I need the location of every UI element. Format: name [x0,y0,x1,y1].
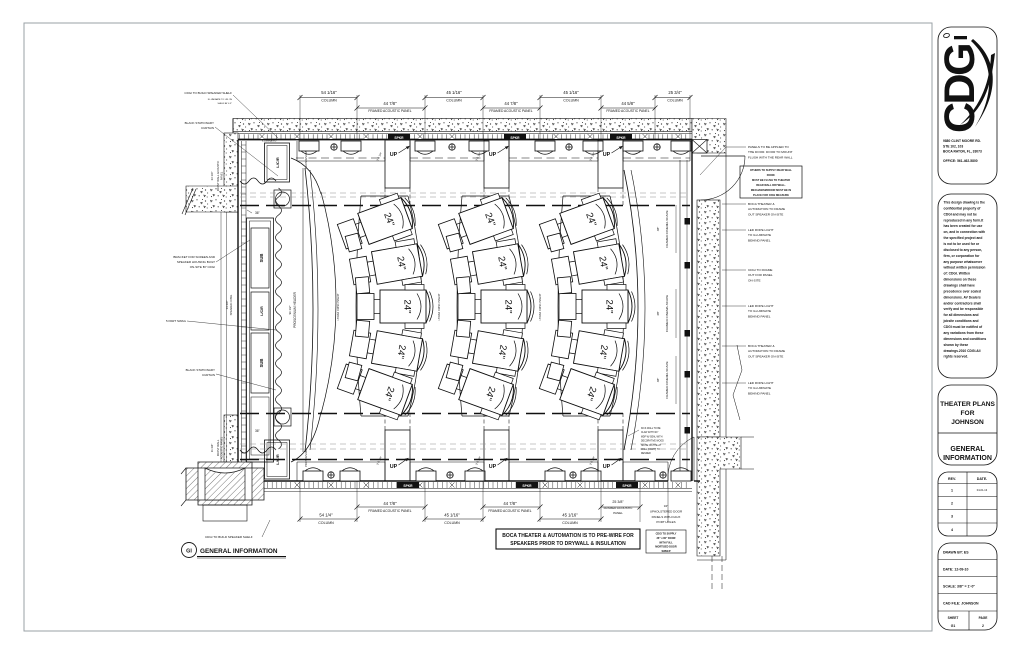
svg-text:25 3/4": 25 3/4" [668,90,682,95]
svg-text:GI: GI [186,548,192,554]
svg-text:1: 1 [951,489,953,493]
svg-text:PANEL: PANEL [613,511,623,515]
svg-text:SCALE: 3/8" = 1'-0": SCALE: 3/8" = 1'-0" [943,585,975,589]
svg-text:L/C/R: L/C/R [275,157,280,168]
svg-text:FRAMED CINEMA-SCAPE: FRAMED CINEMA-SCAPE [665,210,669,247]
svg-text:rights reserved.: rights reserved. [944,355,969,359]
svg-text:5 PART SWAG: 5 PART SWAG [166,319,187,323]
svg-text:OUT SPEAKER ON-SITE: OUT SPEAKER ON-SITE [748,354,783,358]
svg-text:CDGI TO FRAME: CDGI TO FRAME [748,268,772,272]
svg-text:FRONT WALL: FRONT WALL [216,439,220,456]
svg-text:disclosed to any person,: disclosed to any person, [944,248,983,252]
svg-text:This design drawing is the: This design drawing is the [944,201,986,205]
svg-text:COLUMN: COLUMN [444,521,460,525]
svg-text:33 1/4": 33 1/4" [210,172,214,181]
svg-text:CURTAIN: CURTAIN [202,373,215,377]
svg-text:NICHE ON-THE-AT: NICHE ON-THE-AT [641,444,662,447]
svg-text:COLUMN: COLUMN [562,521,578,525]
svg-text:SWEEP: SWEEP [661,550,670,553]
svg-text:verify and be responsible: verify and be responsible [944,307,984,311]
svg-text:BEHIND PANEL: BEHIND PANEL [748,238,771,242]
svg-text:CURTAIN: CURTAIN [201,126,214,130]
svg-text:and/or contractors shall: and/or contractors shall [944,301,982,305]
svg-text:THEATER PLANS: THEATER PLANS [940,401,995,408]
svg-text:36": 36" [255,429,260,433]
svg-text:has been created for use: has been created for use [944,224,983,228]
svg-text:44 7/8": 44 7/8" [383,101,397,106]
svg-text:FRAMED CINEMA-SCAPE: FRAMED CINEMA-SCAPE [665,361,669,398]
svg-text:any variations from these: any variations from these [944,331,984,335]
svg-text:confidential property of: confidential property of [944,206,982,210]
svg-text:FLUSH WITH THE REAR WALL: FLUSH WITH THE REAR WALL [748,155,793,159]
svg-text:BRACKET FOR SCREEN AND: BRACKET FOR SCREEN AND [173,255,215,259]
svg-text:2: 2 [951,502,953,506]
svg-text:firm, or corporation for: firm, or corporation for [944,254,981,258]
svg-text:REAR WALL DRYWALL.: REAR WALL DRYWALL. [756,183,786,187]
svg-text:3'-5 1/4": 3'-5 1/4" [474,151,482,161]
svg-text:54 1/16": 54 1/16" [321,90,337,95]
svg-text:BLACK STATIONARY: BLACK STATIONARY [186,368,215,372]
svg-text:SPEAKERS PRIOR TO DRYWALL & IN: SPEAKERS PRIOR TO DRYWALL & INSULATION [510,541,626,547]
svg-text:PANELS TO BE APPLIED TO: PANELS TO BE APPLIED TO [748,145,789,149]
svg-text:3'-5 1/4": 3'-5 1/4" [588,455,596,465]
svg-text:LTD/AR DRINK INSERT: LTD/AR DRINK INSERT [337,293,340,320]
svg-text:UPHOLSTERED DOOR: UPHOLSTERED DOOR [650,509,683,513]
svg-text:UP: UP [390,152,398,158]
svg-text:36" x 80" DOOR: 36" x 80" DOOR [657,537,676,540]
svg-text:COLUMN: COLUMN [321,99,337,103]
svg-text:3'-5 1/4": 3'-5 1/4" [474,455,482,465]
svg-text:for all dimensions and: for all dimensions and [944,313,979,317]
svg-text:drawings.2010 CDGI.All: drawings.2010 CDGI.All [944,349,981,353]
svg-text:BEHIND PANEL: BEHIND PANEL [748,314,771,318]
svg-text:GENERAL INFORMATION: GENERAL INFORMATION [200,548,278,555]
svg-text:11 3/4": 11 3/4" [210,444,214,453]
svg-text:45 1/16": 45 1/16" [562,513,578,518]
svg-text:SPEAKER HOUSING BUILT: SPEAKER HOUSING BUILT [177,260,215,264]
svg-text:PROSCENIUM HEADER: PROSCENIUM HEADER [293,291,297,327]
svg-text:BOCA THEATER &: BOCA THEATER & [748,202,775,206]
svg-text:ON-SITE BY CDGI: ON-SITE BY CDGI [190,265,215,269]
svg-text:on, and in connection with: on, and in connection with [944,230,986,234]
svg-text:SPKR: SPKR [622,484,632,488]
svg-text:PORT HOLES: PORT HOLES [656,520,675,524]
svg-text:32": 32" [664,504,668,508]
svg-text:CDG: CDG [936,45,984,133]
svg-text:3'-5 1/4": 3'-5 1/4" [588,151,596,161]
svg-text:dimensions and conditions: dimensions and conditions [944,337,987,341]
svg-text:FRAMED ACOUSTIC PANEL: FRAMED ACOUSTIC PANEL [368,509,411,513]
svg-text:JOHNSON: JOHNSON [951,419,984,426]
svg-text:FRAMED ACOUSTIC: FRAMED ACOUSTIC [604,506,634,510]
svg-text:any purpose whatsoever: any purpose whatsoever [944,260,983,264]
svg-text:WALL [RIGHT] TO: WALL [RIGHT] TO [641,448,660,451]
svg-text:DATE: 12-09-10: DATE: 12-09-10 [943,568,968,572]
svg-text:LTD/AR DRINK INSERT: LTD/AR DRINK INSERT [438,293,441,320]
svg-text:SPKR: SPKR [403,484,413,488]
svg-text:dimensions. AV Dealers: dimensions. AV Dealers [944,295,981,299]
svg-text:THE DOOR. DOOR TO MOUNT: THE DOOR. DOOR TO MOUNT [748,150,793,154]
svg-text:SHELF AT 4.5": SHELF AT 4.5" [217,102,232,105]
svg-text:MECHANISM/DOOR MUST BE IN: MECHANISM/DOOR MUST BE IN [751,188,791,192]
svg-text:ı: ı [946,34,973,41]
svg-text:DATE.: DATE. [977,477,988,481]
svg-text:COLUMN: COLUMN [318,521,334,525]
svg-text:FRAMED ACOUSTIC PANEL: FRAMED ACOUSTIC PANEL [488,509,531,513]
svg-text:FRAMED ACOUSTIC PANEL: FRAMED ACOUSTIC PANEL [489,109,532,113]
svg-text:OFFICE: 561-462-5800: OFFICE: 561-462-5800 [943,159,978,163]
svg-text:04-01-13: 04-01-13 [977,488,988,492]
svg-text:precedence over scaled: precedence over scaled [944,289,981,293]
svg-text:48": 48" [656,311,660,316]
svg-text:the specified project and: the specified project and [944,236,983,240]
svg-text:FOR: FOR [961,410,975,417]
svg-text:CDGI TO SUPPLY: CDGI TO SUPPLY [656,533,677,536]
svg-text:PLACE FOR CDGI MEASURE: PLACE FOR CDGI MEASURE [753,193,789,197]
svg-text:3'-5 1/4": 3'-5 1/4" [375,151,383,161]
svg-text:FRAMED ACOUSTIC PANEL: FRAMED ACOUSTIC PANEL [368,109,411,113]
svg-text:44 7/8": 44 7/8" [383,501,397,506]
svg-text:DRAWN BY: ES: DRAWN BY: ES [943,551,969,555]
svg-text:UP: UP [603,464,611,470]
svg-text:FRONT WALL ACOUSTIC: FRONT WALL ACOUSTIC [216,161,220,192]
svg-text:SPKR: SPKR [510,136,520,140]
svg-text:MORTISED DOOR: MORTISED DOOR [655,546,677,549]
svg-text:DECORATIVE WOOD: DECORATIVE WOOD [641,440,664,443]
svg-text:WITH FULL: WITH FULL [659,541,673,544]
svg-text:45 1/16": 45 1/16" [446,90,462,95]
svg-text:CDGI TO BUILD SPEAKER SHELF: CDGI TO BUILD SPEAKER SHELF [205,535,253,539]
svg-text:PROSCENIUM: PROSCENIUM [304,449,308,467]
svg-text:OUT FOR PANEL: OUT FOR PANEL [748,273,773,277]
svg-text:UP: UP [489,464,497,470]
svg-text:COLUMN: COLUMN [446,99,462,103]
svg-text:3: 3 [951,515,953,519]
svg-text:G1: G1 [951,624,956,628]
svg-text:LED ROPE LIGHT: LED ROPE LIGHT [748,304,774,308]
svg-text:FRAMED CINEMA-SCAPE: FRAMED CINEMA-SCAPE [665,295,669,332]
svg-text:CLAD WITH 3/4": CLAD WITH 3/4" [641,431,658,434]
svg-text:without written permission: without written permission [943,266,986,270]
svg-text:FRAMED ACOUSTIC PANEL: FRAMED ACOUSTIC PANEL [606,109,649,113]
svg-text:CAD FILE: JOHNSON: CAD FILE: JOHNSON [943,602,979,606]
svg-text:45 1/16": 45 1/16" [444,513,460,518]
svg-text:ON-SITE: ON-SITE [748,278,761,282]
svg-text:44 7/8": 44 7/8" [504,101,518,106]
svg-text:drawings shall have: drawings shall have [944,284,975,288]
svg-text:54 1/4": 54 1/4" [319,513,333,518]
svg-text:REV.: REV. [948,477,956,481]
svg-text:PANEL: PANEL [220,171,224,180]
svg-text:dimensions on these: dimensions on these [944,278,977,282]
svg-text:GENERAL: GENERAL [950,446,985,453]
svg-text:ILLUMINATED: ILLUMINATED [262,140,277,143]
svg-text:CDGI must be notified of: CDGI must be notified of [944,325,984,329]
svg-text:INFORMATION: INFORMATION [943,455,992,462]
svg-text:L/C/R: L/C/R [260,306,264,316]
svg-text:9880 CLINT MOORE RD.: 9880 CLINT MOORE RD. [943,139,981,143]
svg-text:jobsite conditions and: jobsite conditions and [943,319,979,323]
svg-text:SPEAKER COWL: SPEAKER COWL [229,294,233,315]
svg-text:UP: UP [603,152,611,158]
svg-text:ILLUMINATE TO L/R ON: ILLUMINATE TO L/R ON [208,98,233,101]
svg-text:MDF W/ SEAL WITH: MDF W/ SEAL WITH [641,435,663,438]
svg-text:LED ROPE LIGHT: LED ROPE LIGHT [748,381,774,385]
svg-text:of: CDGI. Written: of: CDGI. Written [944,272,971,276]
svg-text:CDGI TO BUILD SPEAKER SHELF: CDGI TO BUILD SPEAKER SHELF [184,91,232,95]
svg-text:SPKR: SPKR [394,136,404,140]
svg-text:14 3/4": 14 3/4" [225,301,229,310]
svg-text:SHEET: SHEET [948,616,959,620]
svg-text:LTD/AR DRINK INSERT: LTD/AR DRINK INSERT [539,293,542,320]
svg-text:OTHERS TO SUPPLY REAR WALL: OTHERS TO SUPPLY REAR WALL [750,168,792,172]
svg-text:SUB: SUB [259,254,264,263]
svg-text:TO ILLUMINATE: TO ILLUMINATE [748,386,771,390]
svg-text:MUST BE FLUSH TO THEATER: MUST BE FLUSH TO THEATER [752,178,790,182]
svg-text:ACOUSTIC PANEL: ACOUSTIC PANEL [220,436,224,459]
svg-text:BOCA THEATER & AUTOMATION IS T: BOCA THEATER & AUTOMATION IS TO PRE-WIRE… [502,533,634,539]
svg-text:UP: UP [489,152,497,158]
svg-text:KICK WALL TO BE: KICK WALL TO BE [641,427,661,430]
svg-text:3'-5 1/4": 3'-5 1/4" [375,455,383,465]
svg-text:BLACK STATIONARY: BLACK STATIONARY [185,121,214,125]
svg-text:96 1/2": 96 1/2" [288,306,292,315]
svg-text:25 3/8": 25 3/8" [612,500,624,504]
svg-text:SPKR: SPKR [616,136,626,140]
svg-text:TO ILLUMINATE: TO ILLUMINATE [748,233,771,237]
svg-text:is not to be used for or: is not to be used for or [944,242,980,246]
svg-text:AUTOMATION TO FRAME: AUTOMATION TO FRAME [748,349,785,353]
svg-text:BOCA RATON, FL, 33073: BOCA RATON, FL, 33073 [943,150,982,154]
svg-text:2: 2 [982,624,984,628]
svg-text:48": 48" [656,227,660,232]
svg-text:PANELS WITH FAUX: PANELS WITH FAUX [652,515,681,519]
svg-text:reproduced in any form.It: reproduced in any form.It [944,218,985,222]
svg-text:TO ILLUMINATE: TO ILLUMINATE [748,309,771,313]
svg-text:LED ROPE LIGHT: LED ROPE LIGHT [748,228,774,232]
svg-text:COLUMN: COLUMN [667,99,683,103]
svg-text:44 5/8": 44 5/8" [621,101,635,106]
svg-text:AUTOMATION TO FRAME: AUTOMATION TO FRAME [748,207,785,211]
svg-text:OUT SPEAKER ON-SITE: OUT SPEAKER ON-SITE [748,212,783,216]
svg-text:44 7/8": 44 7/8" [503,501,517,506]
svg-text:UP: UP [390,464,398,470]
svg-text:DOOR.: DOOR. [767,173,776,177]
svg-text:COLUMN: COLUMN [563,99,579,103]
svg-text:CDGI and may not be: CDGI and may not be [944,212,978,216]
svg-text:4: 4 [951,528,953,532]
svg-text:48": 48" [656,378,660,383]
svg-text:STE 102, 103: STE 102, 103 [943,144,963,148]
svg-text:RENDER: RENDER [641,453,651,455]
svg-text:BEHIND PANEL: BEHIND PANEL [748,391,771,395]
svg-text:36": 36" [255,211,260,215]
svg-text:SUB: SUB [259,359,264,368]
svg-text:SPKR: SPKR [522,484,532,488]
svg-text:45 1/16": 45 1/16" [563,90,579,95]
svg-text:shown by these: shown by these [944,343,969,347]
svg-text:BOCA THEATER &: BOCA THEATER & [748,344,775,348]
svg-text:PAGE: PAGE [979,616,988,620]
